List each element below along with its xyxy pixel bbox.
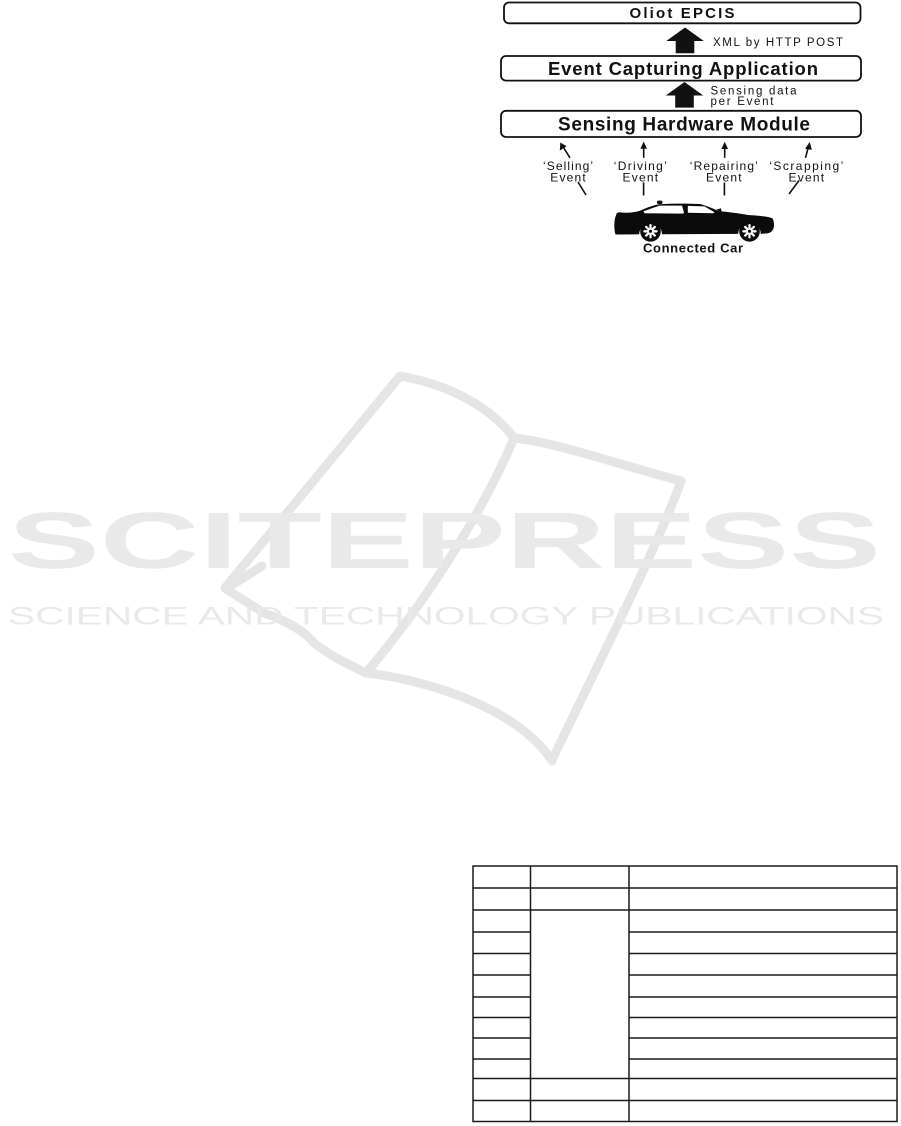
svg-text:Sensing Hardware Module: Sensing Hardware Module (558, 115, 810, 136)
svg-text:Event Capturing Application: Event Capturing Application (548, 58, 818, 79)
svg-text:per Event: per Event (711, 96, 775, 108)
svg-text:Event: Event (789, 170, 825, 184)
svg-text:Event: Event (706, 170, 742, 184)
svg-text:Oliot EPCIS: Oliot EPCIS (630, 5, 735, 22)
svg-text:SCITEPRESS: SCITEPRESS (8, 496, 881, 585)
svg-text:Event: Event (550, 170, 586, 184)
svg-text:XML by HTTP POST: XML by HTTP POST (713, 37, 843, 49)
svg-text:Connected Car: Connected Car (643, 241, 743, 256)
svg-text:Event: Event (623, 170, 659, 184)
svg-text:SCIENCE AND TECHNOLOGY PUBLICA: SCIENCE AND TECHNOLOGY PUBLICATIONS (8, 603, 884, 631)
